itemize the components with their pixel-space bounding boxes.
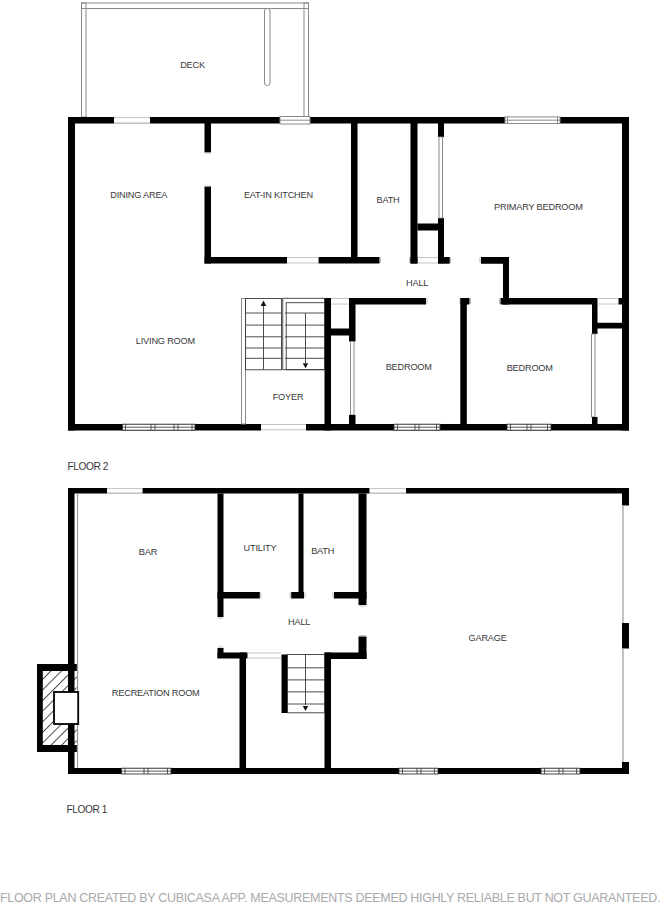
- svg-text:LIVING ROOM: LIVING ROOM: [136, 336, 195, 346]
- svg-text:HALL: HALL: [406, 278, 428, 288]
- svg-text:EAT-IN KITCHEN: EAT-IN KITCHEN: [244, 190, 313, 200]
- svg-text:HALL: HALL: [288, 617, 310, 627]
- svg-text:FOYER: FOYER: [273, 392, 304, 402]
- svg-text:DECK: DECK: [180, 60, 206, 70]
- svg-text:BEDROOM: BEDROOM: [507, 363, 553, 373]
- svg-text:FLOOR 2: FLOOR 2: [68, 461, 109, 472]
- svg-text:BEDROOM: BEDROOM: [386, 362, 432, 372]
- svg-text:BATH: BATH: [376, 195, 399, 205]
- svg-text:FLOOR 1: FLOOR 1: [67, 804, 108, 815]
- svg-text:DINING AREA: DINING AREA: [110, 190, 168, 200]
- svg-text:FLOOR PLAN CREATED BY CUBICASA: FLOOR PLAN CREATED BY CUBICASA APP. MEAS…: [0, 891, 660, 905]
- svg-text:PRIMARY BEDROOM: PRIMARY BEDROOM: [494, 202, 583, 212]
- svg-text:RECREATION ROOM: RECREATION ROOM: [112, 688, 200, 698]
- svg-text:BAR: BAR: [139, 547, 158, 557]
- svg-text:BATH: BATH: [311, 546, 334, 556]
- svg-text:GARAGE: GARAGE: [469, 633, 507, 643]
- svg-text:UTILITY: UTILITY: [244, 543, 277, 553]
